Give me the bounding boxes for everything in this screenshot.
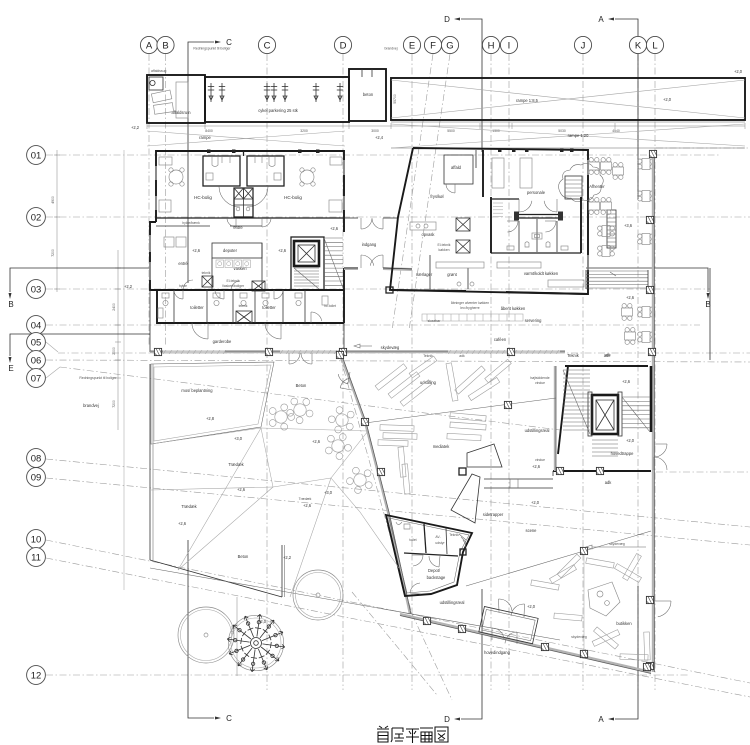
svg-text:entré: entré	[178, 261, 188, 266]
svg-text:F: F	[430, 40, 436, 51]
svg-text:12: 12	[31, 670, 42, 681]
svg-text:B: B	[8, 300, 13, 309]
svg-text:J: J	[581, 40, 586, 51]
svg-text:indgang: indgang	[362, 242, 377, 247]
svg-text:C: C	[264, 40, 271, 51]
svg-text:skydevæg: skydevæg	[609, 542, 625, 546]
svg-text:06: 06	[31, 355, 42, 366]
svg-text:+2,6: +2,6	[622, 379, 631, 384]
svg-text:hovedindgang: hovedindgang	[484, 650, 510, 655]
svg-text:7200: 7200	[51, 249, 55, 257]
svg-text:toilet: toilet	[409, 538, 416, 542]
svg-text:4900: 4900	[51, 196, 55, 204]
svg-text:+2,0: +2,0	[258, 619, 267, 624]
svg-text:HC-bolig: HC-bolig	[284, 195, 302, 200]
svg-text:skydevæg: skydevæg	[571, 635, 587, 639]
svg-text:01: 01	[31, 150, 42, 161]
svg-text:11: 11	[31, 552, 41, 563]
svg-text:mos/ beplantning: mos/ beplantning	[181, 388, 213, 393]
svg-text:+2,8: +2,8	[206, 416, 215, 421]
svg-text:D: D	[444, 15, 450, 24]
svg-text:rampe 1:20: rampe 1:20	[568, 133, 589, 138]
svg-text:adk: adk	[459, 354, 465, 358]
svg-text:10: 10	[31, 534, 42, 545]
svg-text:teknik: teknik	[239, 304, 248, 308]
svg-text:rampe: rampe	[199, 135, 211, 140]
svg-text:frys/køl: frys/køl	[430, 194, 443, 199]
svg-text:+2,2: +2,2	[283, 555, 292, 560]
svg-text:I: I	[508, 40, 511, 51]
svg-text:Beton: Beton	[238, 554, 249, 559]
svg-text:+2,6: +2,6	[626, 295, 635, 300]
svg-text:+2,2: +2,2	[131, 125, 140, 130]
svg-text:D: D	[340, 40, 347, 51]
svg-text:toiletter: toiletter	[190, 305, 204, 310]
svg-text:+3,0: +3,0	[234, 436, 243, 441]
svg-text:Trædæk: Trædæk	[228, 462, 244, 467]
svg-text:Vaskeri/boliger: Vaskeri/boliger	[222, 284, 245, 288]
svg-text:vaskeri: vaskeri	[234, 266, 247, 271]
svg-text:E: E	[409, 40, 415, 51]
svg-text:2000: 2000	[112, 347, 116, 355]
svg-text:beton: beton	[363, 92, 374, 97]
svg-text:servering: servering	[525, 318, 543, 323]
svg-text:L: L	[652, 40, 657, 51]
svg-text:caféen: caféen	[494, 337, 507, 342]
svg-text:hc-toilet: hc-toilet	[324, 304, 336, 308]
svg-text:slusebar: slusebar	[428, 319, 442, 323]
svg-text:05: 05	[31, 337, 42, 348]
svg-text:mediatek: mediatek	[433, 444, 451, 449]
svg-text:Trædæk: Trædæk	[299, 497, 312, 501]
svg-text:2400: 2400	[112, 303, 116, 311]
svg-text:8400: 8400	[205, 129, 213, 133]
svg-text:3200: 3200	[300, 129, 308, 133]
svg-text:+3,0: +3,0	[324, 490, 333, 495]
svg-text:07: 07	[31, 373, 42, 384]
svg-text:scene: scene	[526, 528, 538, 533]
svg-text:butikken: butikken	[616, 621, 632, 626]
svg-text:Trædæk: Trædæk	[181, 504, 197, 509]
svg-text:højtsiddende: højtsiddende	[530, 376, 550, 380]
svg-text:rampe 1:8,5: rampe 1:8,5	[516, 98, 539, 103]
svg-text:5500: 5500	[447, 129, 455, 133]
svg-text:+2,6: +2,6	[237, 487, 246, 492]
svg-text:+2,0: +2,0	[734, 69, 743, 74]
svg-text:El-teknik: El-teknik	[437, 243, 450, 247]
svg-text:affaldssug: affaldssug	[151, 69, 167, 73]
svg-text:5030: 5030	[558, 129, 566, 133]
svg-text:opvask: opvask	[422, 232, 436, 237]
svg-text:udstillingsreal: udstillingsreal	[440, 600, 465, 605]
svg-text:Afhenter: Afhenter	[589, 184, 605, 189]
svg-text:brandvej: brandvej	[83, 403, 99, 408]
svg-text:cykel parkering 25 stk: cykel parkering 25 stk	[258, 108, 299, 113]
svg-text:+2,0: +2,0	[626, 438, 635, 443]
svg-text:09: 09	[31, 472, 42, 483]
svg-text:+3,6: +3,6	[624, 223, 633, 228]
svg-text:grønt: grønt	[447, 272, 457, 277]
svg-text:+2,0: +2,0	[531, 500, 540, 505]
svg-text:udstyr: udstyr	[435, 541, 445, 545]
svg-text:04: 04	[31, 320, 42, 331]
svg-text:B: B	[162, 40, 168, 51]
svg-text:+2,2: +2,2	[124, 284, 133, 289]
svg-text:+2,6: +2,6	[278, 248, 287, 253]
svg-text:HC-bolig: HC-bolig	[194, 195, 212, 200]
svg-text:Teknik: Teknik	[567, 353, 580, 358]
svg-text:lev./bygherre: lev./bygherre	[460, 306, 479, 310]
svg-text:åbent køkken: åbent køkken	[501, 306, 526, 311]
svg-text:køkken: køkken	[439, 248, 450, 252]
svg-text:El-teknik: El-teknik	[226, 279, 239, 283]
svg-text:+2,6: +2,6	[330, 226, 339, 231]
svg-text:K: K	[635, 40, 642, 51]
svg-text:AV-: AV-	[435, 535, 440, 539]
svg-text:depoter: depoter	[223, 248, 238, 253]
svg-text:+2,0: +2,0	[527, 604, 536, 609]
svg-text:+2,6: +2,6	[178, 521, 187, 526]
svg-text:7200: 7200	[112, 400, 116, 408]
svg-text:åbninger afventer køkken: åbninger afventer køkken	[451, 301, 489, 305]
svg-text:Depot/: Depot/	[428, 568, 441, 573]
svg-text:teknik: teknik	[202, 271, 211, 275]
svg-text:+2,6: +2,6	[532, 464, 541, 469]
svg-text:Teknik: Teknik	[449, 533, 459, 537]
svg-text:03: 03	[31, 284, 42, 295]
svg-text:adk: adk	[604, 353, 612, 358]
svg-text:D: D	[444, 715, 450, 724]
svg-text:08: 08	[31, 453, 42, 464]
svg-text:udstillingsreal: udstillingsreal	[525, 428, 550, 433]
svg-text:vindue: vindue	[535, 458, 545, 462]
svg-text:backstage: backstage	[427, 575, 446, 580]
svg-text:1300: 1300	[492, 129, 500, 133]
svg-text:3000: 3000	[371, 129, 379, 133]
svg-text:+2,0: +2,0	[663, 97, 672, 102]
svg-text:02: 02	[31, 212, 42, 223]
svg-text:A: A	[598, 715, 604, 724]
svg-text:Redningspunkt til boliger: Redningspunkt til boliger	[193, 47, 231, 51]
svg-text:varmt/koldt køkken: varmt/koldt køkken	[524, 271, 559, 276]
svg-text:Redningspunkt til boliger: Redningspunkt til boliger	[79, 376, 117, 380]
svg-text:Beton: Beton	[296, 383, 307, 388]
svg-text:toiletter: toiletter	[262, 305, 276, 310]
svg-text:+2,6: +2,6	[303, 503, 312, 508]
svg-text:affald: affald	[451, 165, 462, 170]
svg-text:55700: 55700	[393, 94, 397, 104]
svg-text:vindue: vindue	[535, 381, 545, 385]
svg-text:+2,4: +2,4	[375, 135, 384, 140]
svg-text:+2,6: +2,6	[312, 439, 321, 444]
svg-text:+2,6: +2,6	[192, 248, 201, 253]
svg-text:adk: adk	[605, 480, 613, 485]
svg-text:G: G	[446, 40, 453, 51]
svg-text:H: H	[488, 40, 495, 51]
svg-text:personale: personale	[527, 190, 546, 195]
svg-text:E: E	[8, 364, 13, 373]
svg-text:hylde/bænk: hylde/bænk	[182, 221, 200, 225]
svg-text:A: A	[598, 15, 604, 24]
svg-text:skydevæg: skydevæg	[381, 345, 400, 350]
svg-text:C: C	[226, 714, 232, 723]
svg-text:sidetrapper: sidetrapper	[483, 512, 504, 517]
svg-text:brandvej: brandvej	[384, 47, 397, 51]
svg-text:garderobe: garderobe	[213, 339, 232, 344]
svg-text:A: A	[146, 40, 153, 51]
